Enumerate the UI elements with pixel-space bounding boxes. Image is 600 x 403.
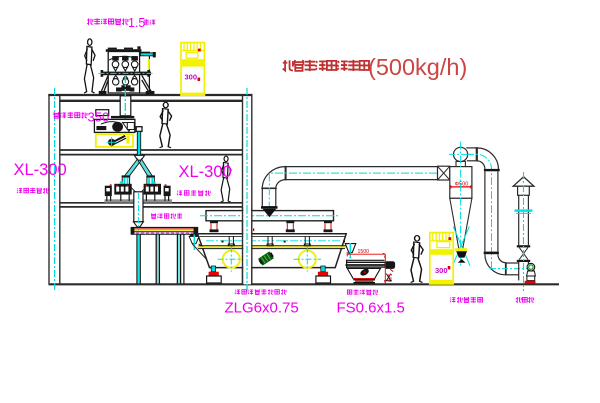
svg-text:1.5: 1.5	[128, 16, 145, 30]
svg-text:XL-300: XL-300	[14, 161, 67, 179]
svg-text:ZLG6x0.75: ZLG6x0.75	[225, 300, 299, 317]
svg-text:FS0.6x1.5: FS0.6x1.5	[337, 300, 405, 317]
svg-text:300: 300	[435, 266, 448, 275]
svg-text:XL-300: XL-300	[179, 163, 232, 181]
svg-text:300: 300	[185, 73, 198, 82]
svg-text:540: 540	[386, 274, 392, 283]
svg-text:(500kg/h): (500kg/h)	[368, 54, 467, 80]
svg-text:Φ500: Φ500	[455, 182, 469, 188]
svg-text:350: 350	[88, 110, 110, 125]
svg-text:1500: 1500	[358, 249, 370, 255]
